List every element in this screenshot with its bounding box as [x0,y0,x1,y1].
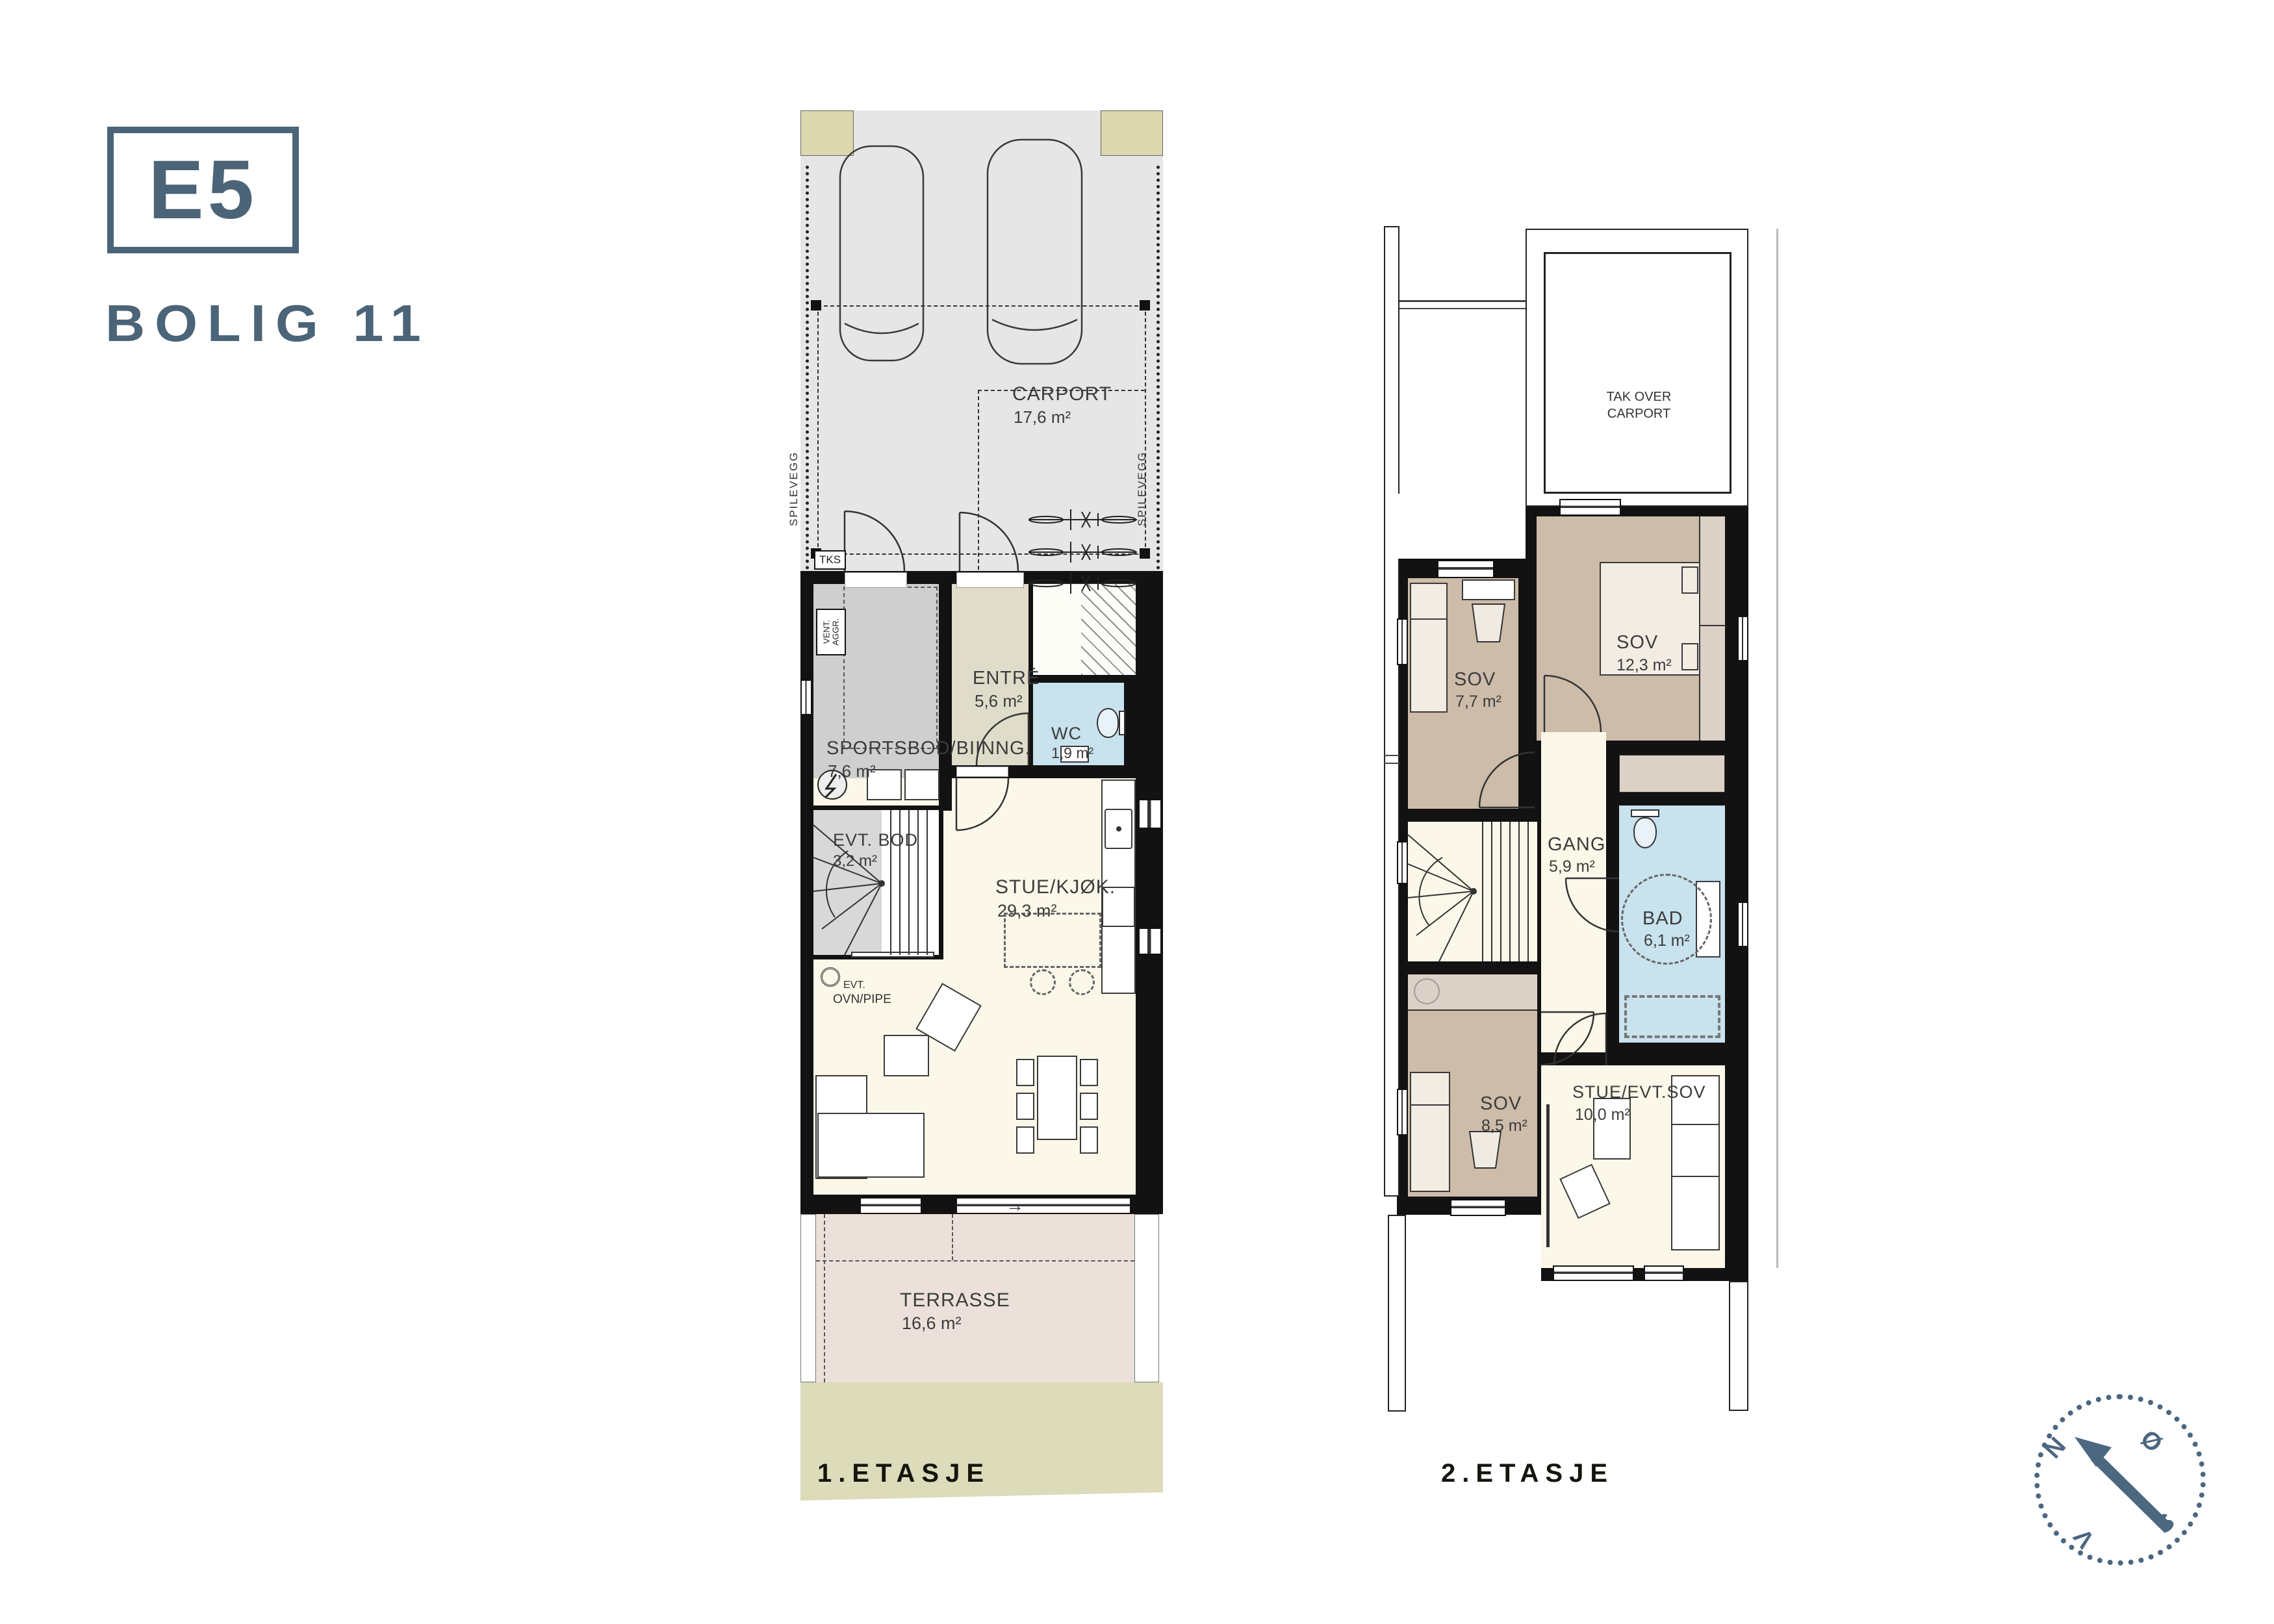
room-area-sov-1: 7,7 m² [1455,692,1501,711]
toilet-tank [1119,711,1125,735]
slide-arrow: → [1006,1195,1024,1216]
window [1644,1265,1684,1281]
room-label-wc: WC [1051,724,1082,744]
window [1138,928,1162,955]
dining-chair [1080,1126,1098,1154]
room-gang [1541,732,1606,1052]
room-label-stue-evt-sov: STUE/EVT.SOV [1572,1082,1706,1102]
coffee-table [884,1035,929,1076]
desk [1462,579,1515,600]
window [1553,1265,1634,1281]
sofa-line [1671,1176,1720,1177]
window [800,679,812,715]
wardrobe-divider [1699,625,1725,626]
window [1397,1089,1408,1136]
room-area-sov-3: 8,5 m² [1481,1117,1527,1136]
post-block-right [1101,110,1163,156]
room-area-carport: 17,6 m² [1014,407,1071,427]
room-area-stue-evt-sov: 10,0 m² [1575,1106,1630,1124]
window [1397,618,1408,665]
window [860,1197,922,1214]
room-area-stue-kjok: 29,3 m² [997,901,1057,921]
room-label-tak-over-carport: TAK OVER CARPORT [1589,388,1689,422]
room-label-sov-2: SOV [1616,632,1658,653]
sofa-line [1671,1124,1720,1125]
vent-aggr-label: VENT. AGGR. [822,618,839,646]
room-label-evt-bod: EVT. BOD [833,830,918,850]
sportsbod-storage-outline [843,587,938,749]
interior-wall [1033,675,1136,683]
unit-code: E5 [148,142,258,238]
stue-door-opening [956,767,1008,777]
wardrobe-sketch [1414,978,1440,1004]
floor2-label: 2.ETASJE [1441,1459,1614,1488]
room-area-sportsbod: 7,6 m² [828,761,876,781]
toilet-tank [1631,809,1659,817]
tak-over-carport-inner [1544,252,1731,494]
railing-line [1399,300,1526,302]
bar-stool [1069,969,1095,995]
dining-chair [1080,1093,1098,1120]
room-label-bad: BAD [1642,908,1683,930]
room-area-bad: 6,1 m² [1644,932,1690,950]
project-title: BOLIG 11 [105,294,430,353]
terrace-dash [952,1214,953,1260]
toilet-bowl [1097,708,1119,738]
terrace-column [1134,1214,1159,1382]
sportsbod-door-opening [845,572,907,588]
room-label-terrasse: TERRASSE [900,1289,1010,1312]
stair-hatch [1081,584,1136,675]
window [1437,560,1494,578]
room-label-sov-3: SOV [1480,1093,1522,1115]
sofa-seat [817,1113,925,1178]
bed-pillow-line [1411,618,1446,620]
window [1737,902,1748,947]
pillow [1681,643,1698,670]
support-leg [1388,1215,1406,1412]
carport-post [1140,300,1150,311]
room-area-sov-2: 12,3 m² [1616,656,1672,675]
entry-door-opening [956,572,1024,588]
terrace-column [800,1214,816,1382]
sink-drain [1116,826,1121,831]
window [1450,1199,1506,1216]
strip-tick [1384,755,1399,756]
window [1737,616,1748,661]
room-area-wc: 1,9 m² [1051,744,1093,762]
dining-chair [1016,1059,1034,1086]
wardrobe [1699,516,1725,741]
shower-zone [1624,995,1720,1038]
dining-chair [1016,1093,1034,1120]
side-strip [1384,226,1399,1197]
tks-box: TKS [814,550,846,570]
bed-single [1410,1072,1450,1192]
room-label-gang: GANG [1548,834,1605,856]
support-leg [1729,1281,1748,1411]
room-area-gang: 5,9 m² [1549,857,1595,876]
room-area-terrasse: 16,6 m² [902,1313,962,1334]
carport-dash-line [817,553,1145,555]
terrace-dash [816,1260,1134,1262]
spilevegg-label-right: SPILEVEGG [1136,451,1149,526]
site-boundary-line [1776,229,1778,1268]
sliding-door [956,1197,1131,1214]
window [1559,499,1621,516]
dining-chair [1016,1126,1034,1154]
exterior-niche [1397,494,1526,559]
strip-tick [1384,763,1399,764]
room-label-carport: CARPORT [1012,383,1112,405]
spilevegg-chain-left [806,166,809,570]
open-door-leaf [1546,1104,1550,1247]
spilevegg-chain-right [1156,166,1160,570]
dining-table [1037,1056,1077,1140]
room-label-sov-1: SOV [1454,669,1496,691]
floor1-label: 1.ETASJE [817,1459,990,1488]
dining-chair [1080,1059,1098,1086]
closet-band [1619,755,1725,793]
bar-stool [1030,969,1056,995]
window [1397,841,1408,884]
spilevegg-label-left: SPILEVEGG [787,451,800,526]
room-area-entre: 5,6 m² [975,691,1023,711]
dryer-symbol [904,769,939,800]
carport-floor [800,110,1163,571]
window [1138,799,1162,829]
post-block-left [800,110,854,156]
unit-code-badge: E5 [107,127,299,253]
floorplan-sheet: E5 BOLIG 11 SPILEVEGG SPILEVEGG TKS CARP… [0,0,2274,1624]
shelf [851,952,934,958]
carport-dash-line [978,390,979,570]
interior-wall [939,765,952,811]
room-label-stue-kjok: STUE/KJØK. [995,876,1116,898]
carport-dash-line [817,305,1145,307]
ovn-pipe-symbol [821,967,840,987]
bed-pillow-line [1411,1104,1449,1106]
carport-post [1140,548,1150,559]
stairwell [1408,822,1537,961]
ovn-pipe-label: OVN/PIPE [833,993,891,1007]
vent-aggr-box: VENT. AGGR. [816,609,846,655]
carport-post [811,300,821,311]
toilet-bowl [1633,817,1657,848]
room-label-entre: ENTRÉ [973,668,1040,689]
carport-dash-line [817,305,819,553]
railing-line [1399,308,1526,309]
evt-label: EVT. [843,980,865,991]
pillow [1681,566,1698,594]
compass-circle [2034,1394,2206,1566]
room-label-sportsbod: SPORTSBOD/BIINNG. [826,738,1031,759]
terrace-dash [824,1214,825,1382]
room-area-evt-bod: 3,2 m² [833,852,877,870]
bed-single [1410,583,1448,713]
